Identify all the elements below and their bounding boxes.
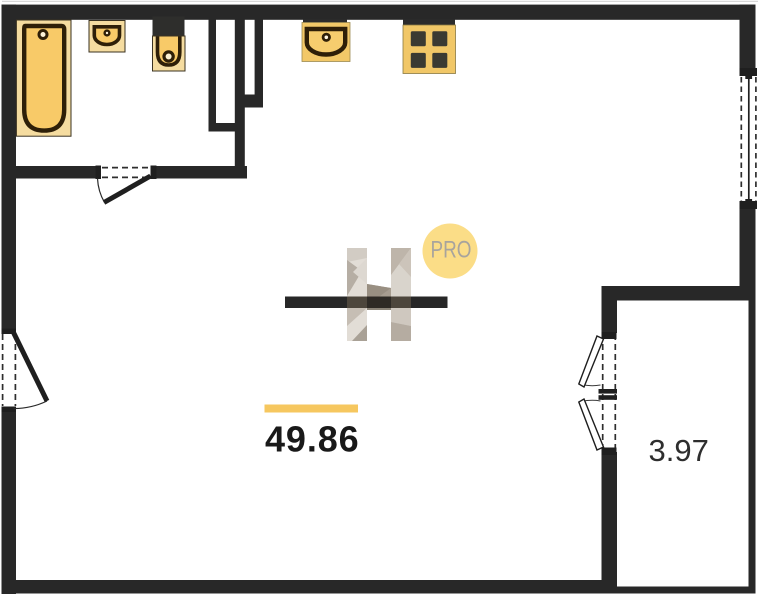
svg-text:PRO: PRO	[431, 237, 472, 264]
svg-text:3.97: 3.97	[649, 433, 709, 468]
svg-text:49.86: 49.86	[265, 419, 360, 460]
